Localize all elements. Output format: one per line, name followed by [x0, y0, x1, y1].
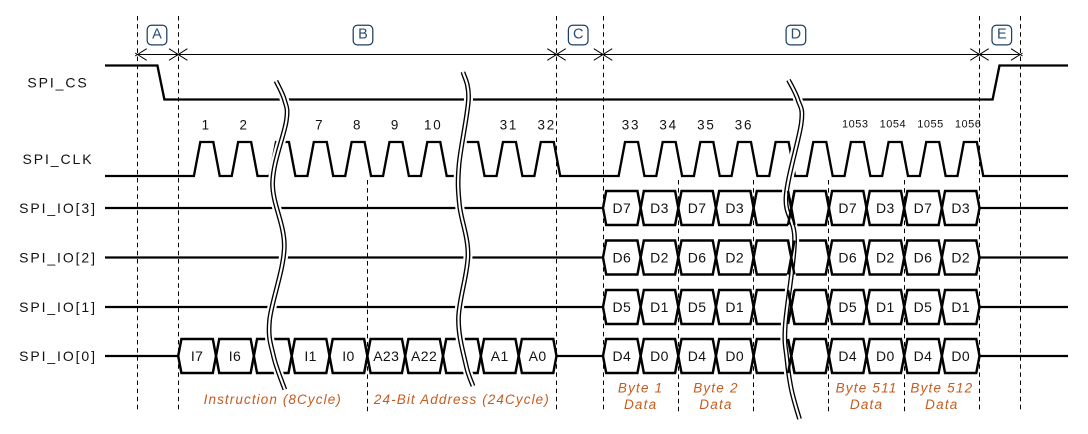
svg-text:2: 2 — [240, 118, 249, 133]
svg-text:D6: D6 — [838, 250, 857, 266]
svg-text:D1: D1 — [876, 299, 895, 315]
svg-text:D1: D1 — [951, 299, 970, 315]
svg-text:D3: D3 — [650, 200, 669, 216]
svg-text:35: 35 — [697, 118, 716, 133]
svg-text:D5: D5 — [838, 299, 857, 315]
svg-text:D4: D4 — [612, 348, 631, 364]
svg-text:Byte 511: Byte 511 — [836, 381, 898, 396]
svg-text:A22: A22 — [411, 348, 437, 364]
svg-text:A: A — [152, 27, 162, 43]
svg-text:D6: D6 — [688, 250, 707, 266]
svg-text:10: 10 — [424, 118, 443, 133]
svg-text:D1: D1 — [650, 299, 669, 315]
svg-text:Byte 2: Byte 2 — [693, 381, 738, 396]
svg-text:D4: D4 — [688, 348, 707, 364]
svg-text:C: C — [573, 27, 583, 43]
svg-text:SPI_CLK: SPI_CLK — [23, 151, 94, 167]
svg-text:1054: 1054 — [880, 119, 906, 131]
svg-text:D0: D0 — [951, 348, 970, 364]
svg-text:D7: D7 — [838, 200, 857, 216]
svg-text:8: 8 — [353, 118, 362, 133]
svg-text:A23: A23 — [373, 348, 399, 364]
svg-text:D2: D2 — [951, 250, 970, 266]
svg-text:B: B — [358, 27, 368, 43]
svg-text:D5: D5 — [914, 299, 933, 315]
svg-text:Data: Data — [624, 397, 657, 412]
svg-text:D7: D7 — [612, 200, 631, 216]
svg-text:D6: D6 — [612, 250, 631, 266]
svg-text:34: 34 — [659, 118, 678, 133]
svg-text:A0: A0 — [529, 348, 547, 364]
svg-text:Instruction (8Cycle): Instruction (8Cycle) — [204, 392, 342, 407]
svg-text:D2: D2 — [650, 250, 669, 266]
svg-text:1: 1 — [202, 118, 211, 133]
svg-text:D4: D4 — [838, 348, 857, 364]
svg-text:36: 36 — [735, 118, 754, 133]
svg-text:D7: D7 — [688, 200, 707, 216]
svg-text:I6: I6 — [229, 348, 241, 364]
svg-text:Byte 1: Byte 1 — [618, 381, 663, 396]
svg-text:Data: Data — [850, 397, 883, 412]
svg-text:24-Bit Address (24Cycle): 24-Bit Address (24Cycle) — [373, 392, 550, 407]
svg-text:SPI_IO[0]: SPI_IO[0] — [19, 348, 97, 364]
svg-text:D5: D5 — [612, 299, 631, 315]
svg-text:SPI_IO[2]: SPI_IO[2] — [19, 250, 97, 266]
svg-text:D7: D7 — [914, 200, 933, 216]
svg-text:I7: I7 — [191, 348, 203, 364]
svg-text:7: 7 — [315, 118, 324, 133]
svg-text:D0: D0 — [725, 348, 744, 364]
svg-text:33: 33 — [622, 118, 641, 133]
svg-text:D3: D3 — [725, 200, 744, 216]
svg-text:I1: I1 — [304, 348, 316, 364]
svg-text:1053: 1053 — [842, 119, 868, 131]
svg-text:D0: D0 — [876, 348, 895, 364]
svg-text:SPI_IO[3]: SPI_IO[3] — [19, 200, 97, 216]
svg-text:9: 9 — [391, 118, 400, 133]
svg-text:31: 31 — [500, 118, 519, 133]
svg-text:D2: D2 — [876, 250, 895, 266]
svg-text:D2: D2 — [725, 250, 744, 266]
svg-text:1056: 1056 — [955, 119, 981, 131]
svg-text:SPI_CS: SPI_CS — [27, 75, 88, 91]
svg-text:32: 32 — [538, 118, 557, 133]
svg-text:Data: Data — [925, 397, 958, 412]
svg-text:1055: 1055 — [917, 119, 943, 131]
svg-text:D1: D1 — [725, 299, 744, 315]
svg-text:I0: I0 — [342, 348, 354, 364]
svg-text:D6: D6 — [914, 250, 933, 266]
svg-text:Byte 512: Byte 512 — [910, 381, 973, 396]
svg-text:D5: D5 — [688, 299, 707, 315]
svg-text:SPI_IO[1]: SPI_IO[1] — [19, 299, 97, 315]
svg-text:A1: A1 — [491, 348, 509, 364]
svg-text:D4: D4 — [914, 348, 933, 364]
svg-text:D3: D3 — [951, 200, 970, 216]
svg-text:D0: D0 — [650, 348, 669, 364]
svg-text:D3: D3 — [876, 200, 895, 216]
svg-text:Data: Data — [699, 397, 732, 412]
svg-text:D: D — [791, 27, 801, 43]
svg-text:E: E — [997, 27, 1007, 43]
